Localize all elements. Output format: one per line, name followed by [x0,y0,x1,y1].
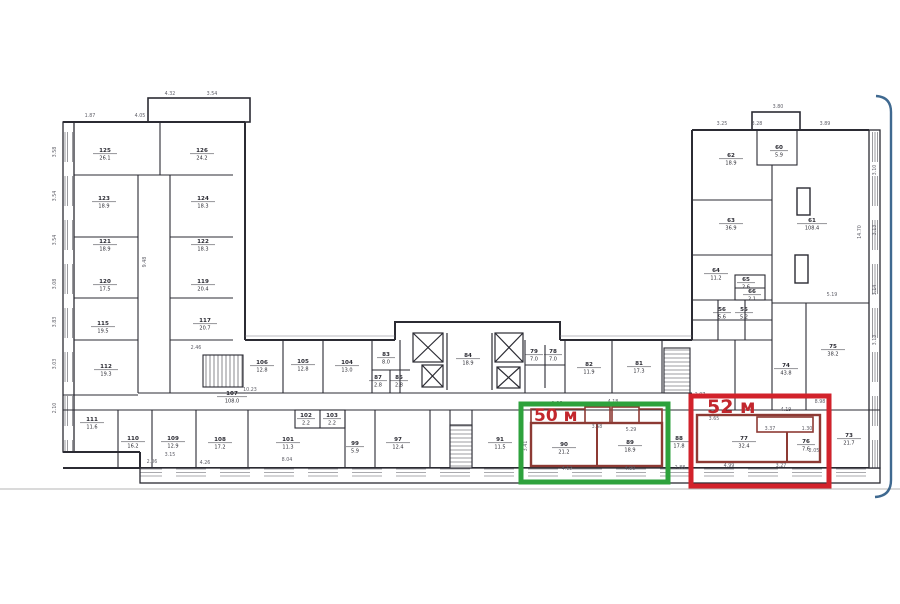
dimension-label: 3.80 [773,104,784,110]
room-label: 11920.4 [191,279,215,292]
room-label: 852.8 [390,375,408,388]
room-label: 11219.3 [94,364,118,377]
svg-text:24.2: 24.2 [196,155,207,161]
svg-text:122: 122 [197,239,209,245]
room-label: 10612.8 [250,360,274,373]
svg-text:18.3: 18.3 [197,203,208,209]
dimension-label: 3.13 [872,335,878,346]
svg-text:75: 75 [829,344,837,350]
svg-text:17.5: 17.5 [99,286,110,292]
dimension-label: 3.10 [872,165,878,176]
svg-text:18.3: 18.3 [197,246,208,252]
dimension-label: 8.98 [815,399,826,405]
svg-text:17.3: 17.3 [633,368,644,374]
dimension-label: 10.23 [243,387,257,393]
svg-text:64: 64 [712,268,720,274]
svg-text:7.0: 7.0 [549,356,557,362]
svg-text:13.0: 13.0 [341,367,352,373]
svg-text:11.5: 11.5 [494,444,505,450]
room-label: 12118.9 [93,239,117,252]
dimension-label: 3.54 [52,191,58,202]
room-label: 12418.3 [191,196,215,209]
svg-text:36.9: 36.9 [725,225,736,231]
svg-text:84: 84 [464,353,472,359]
room-label: 6411.2 [704,268,728,281]
svg-text:90: 90 [560,442,568,448]
svg-text:5.2: 5.2 [740,314,748,320]
svg-text:109: 109 [167,436,179,442]
room-label: 11111.6 [80,417,104,430]
svg-text:8.0: 8.0 [382,359,390,365]
svg-text:110: 110 [127,436,139,442]
dimension-label: 3.03 [52,359,58,370]
svg-text:2.8: 2.8 [374,382,382,388]
svg-text:88: 88 [675,436,683,442]
svg-text:125: 125 [99,148,111,154]
dimension-label: 4.90 [625,466,636,472]
svg-text:5.9: 5.9 [775,152,783,158]
svg-text:21.2: 21.2 [558,449,569,455]
room-label: 838.0 [377,352,395,365]
room-label: 11519.5 [91,321,115,334]
svg-text:91: 91 [496,437,504,443]
room-label: 1022.2 [297,413,315,426]
dimension-label: 3.27 [776,463,787,469]
svg-text:18.9: 18.9 [624,447,635,453]
dimension-label: 8.04 [282,457,293,463]
dimension-label: 3.37 [765,426,776,432]
svg-text:74: 74 [782,363,790,369]
room-label: 8817.8 [667,436,691,449]
room-label: 555.2 [735,307,753,320]
svg-text:7.0: 7.0 [530,356,538,362]
room-label: 7443.8 [774,363,798,376]
room-label: 11016.2 [121,436,145,449]
svg-text:89: 89 [626,440,634,446]
dimension-label: 4.99 [724,463,735,469]
floor-plan-canvas: 12526.112624.212318.912418.312118.912218… [0,0,900,604]
room-label: 7732.4 [732,436,756,449]
room-label: 11720.7 [193,318,217,331]
room-label: 12526.1 [93,148,117,161]
svg-text:18.9: 18.9 [99,246,110,252]
svg-text:12.8: 12.8 [297,366,308,372]
svg-text:18.9: 18.9 [462,360,473,366]
svg-text:38.2: 38.2 [827,351,838,357]
room-label: 10512.8 [291,359,315,372]
dimension-label: 4.26 [200,460,211,466]
svg-text:104: 104 [341,360,353,366]
dimension-label: 3.89 [820,121,831,127]
svg-text:12.9: 12.9 [167,443,178,449]
dimension-label: 5.29 [626,427,637,433]
svg-text:105: 105 [297,359,309,365]
dimension-label: 2.06 [147,459,158,465]
svg-text:83: 83 [382,352,390,358]
svg-text:99: 99 [351,441,359,447]
dimension-label: 2.88 [675,465,686,471]
room-label: 10413.0 [335,360,359,373]
svg-text:112: 112 [100,364,112,370]
dimension-label: 4.32 [165,91,176,97]
svg-text:11.3: 11.3 [282,444,293,450]
svg-text:82: 82 [585,362,593,368]
dimension-label: 3.83 [52,317,58,328]
room-label: 6218.9 [719,153,743,166]
svg-text:73: 73 [845,433,853,439]
room-label: 605.9 [770,145,788,158]
room-label: 8117.3 [627,361,651,374]
svg-text:103: 103 [326,413,338,419]
svg-text:56: 56 [718,307,726,313]
svg-text:119: 119 [197,279,209,285]
svg-text:20.7: 20.7 [199,325,210,331]
dimension-label: 4.19 [781,407,792,413]
svg-text:19.5: 19.5 [97,328,108,334]
dimension-label: 4.05 [135,113,146,119]
dimension-label: 4.12 [562,466,573,472]
svg-text:62: 62 [727,153,735,159]
dimension-label: 1.87 [85,113,96,119]
svg-text:76: 76 [802,439,810,445]
highlight-red-52m-label: 52 м [707,396,756,418]
room-label: 12017.5 [93,279,117,292]
room-label: 12624.2 [190,148,214,161]
svg-text:108.0: 108.0 [225,398,239,404]
room-label: 12218.3 [191,239,215,252]
dimension-label: 5.19 [827,292,838,298]
dimension-label: 3.08 [52,279,58,290]
room-label: 565.6 [713,307,731,320]
room-label: 7538.2 [821,344,845,357]
room-label: 61108.4 [797,218,827,231]
dimension-label: 3.25 [717,121,728,127]
dimension-label: 9.48 [142,257,148,268]
svg-text:11.9: 11.9 [583,369,594,375]
room-label: 10111.3 [276,437,300,450]
svg-text:77: 77 [740,436,748,442]
svg-text:87: 87 [374,375,382,381]
svg-text:2.8: 2.8 [395,382,403,388]
svg-text:12.4: 12.4 [392,444,403,450]
svg-text:124: 124 [197,196,209,202]
room-label: 9021.2 [552,442,576,455]
highlight-green-50m-label: 50 м [534,406,577,426]
room-label: 8418.9 [456,353,480,366]
room-label: 10912.9 [161,436,185,449]
svg-text:108: 108 [214,437,226,443]
svg-text:65: 65 [742,277,750,283]
room-label: 9712.4 [386,437,410,450]
svg-text:101: 101 [282,437,294,443]
dimension-label: 1.30 [802,426,813,432]
staircase-bottom [450,425,472,468]
svg-text:123: 123 [98,196,110,202]
svg-text:43.8: 43.8 [780,370,791,376]
svg-text:32.4: 32.4 [738,443,749,449]
svg-text:12.8: 12.8 [256,367,267,373]
svg-text:108.4: 108.4 [805,225,819,231]
svg-text:102: 102 [300,413,312,419]
svg-text:19.3: 19.3 [100,371,111,377]
svg-text:115: 115 [97,321,109,327]
svg-text:81: 81 [635,361,643,367]
svg-text:21.7: 21.7 [843,440,854,446]
svg-text:55: 55 [740,307,748,313]
svg-text:2.2: 2.2 [302,420,310,426]
dimension-label: 3.14 [872,285,878,296]
dimension-label: 3.58 [52,147,58,158]
room-label: 6336.9 [719,218,743,231]
svg-text:26.1: 26.1 [99,155,110,161]
room-label: 995.9 [346,441,364,454]
svg-text:66: 66 [748,289,756,295]
staircase-left [203,355,243,387]
svg-text:11.6: 11.6 [86,424,97,430]
dimension-label: 3.13 [872,225,878,236]
svg-text:2.2: 2.2 [328,420,336,426]
svg-text:18.9: 18.9 [98,203,109,209]
svg-text:120: 120 [99,279,111,285]
dimension-label: 2.05 [809,448,820,454]
svg-text:20.4: 20.4 [197,286,208,292]
room-label: 7321.7 [837,433,861,446]
svg-text:97: 97 [394,437,402,443]
room-label: 787.0 [544,349,562,362]
svg-text:106: 106 [256,360,268,366]
dimension-label: 3.54 [207,91,218,97]
room-label: 12318.9 [92,196,116,209]
svg-text:5.6: 5.6 [718,314,726,320]
dimension-label: 2.10 [52,403,58,414]
svg-text:60: 60 [775,145,783,151]
svg-text:17.2: 17.2 [214,444,225,450]
svg-text:111: 111 [86,417,98,423]
svg-text:126: 126 [196,148,208,154]
svg-text:121: 121 [99,239,111,245]
dimension-label: 3.41 [523,441,529,452]
staircase-right [664,348,690,393]
room-label: 797.0 [525,349,543,362]
room-label: 8918.9 [618,440,642,453]
svg-text:2.1: 2.1 [748,296,756,302]
svg-text:16.2: 16.2 [127,443,138,449]
dimension-label: 3.58 [592,424,603,430]
svg-text:11.2: 11.2 [710,275,721,281]
dimension-label: 3.54 [52,235,58,246]
room-label: 9111.5 [488,437,512,450]
svg-text:117: 117 [199,318,211,324]
svg-text:85: 85 [395,375,403,381]
svg-text:78: 78 [549,349,557,355]
svg-text:5.9: 5.9 [351,448,359,454]
svg-text:107: 107 [226,391,238,397]
dimension-label: 14.70 [857,225,863,239]
svg-text:63: 63 [727,218,735,224]
room-label: 8211.9 [577,362,601,375]
svg-text:18.9: 18.9 [725,160,736,166]
dimension-label: 3.15 [165,452,176,458]
dimension-label: 3.28 [752,121,763,127]
room-label: 10817.2 [208,437,232,450]
room-label: 1032.2 [323,413,341,426]
svg-text:61: 61 [808,218,816,224]
svg-text:17.8: 17.8 [673,443,684,449]
svg-text:79: 79 [530,349,538,355]
dimension-label: 2.46 [191,345,202,351]
